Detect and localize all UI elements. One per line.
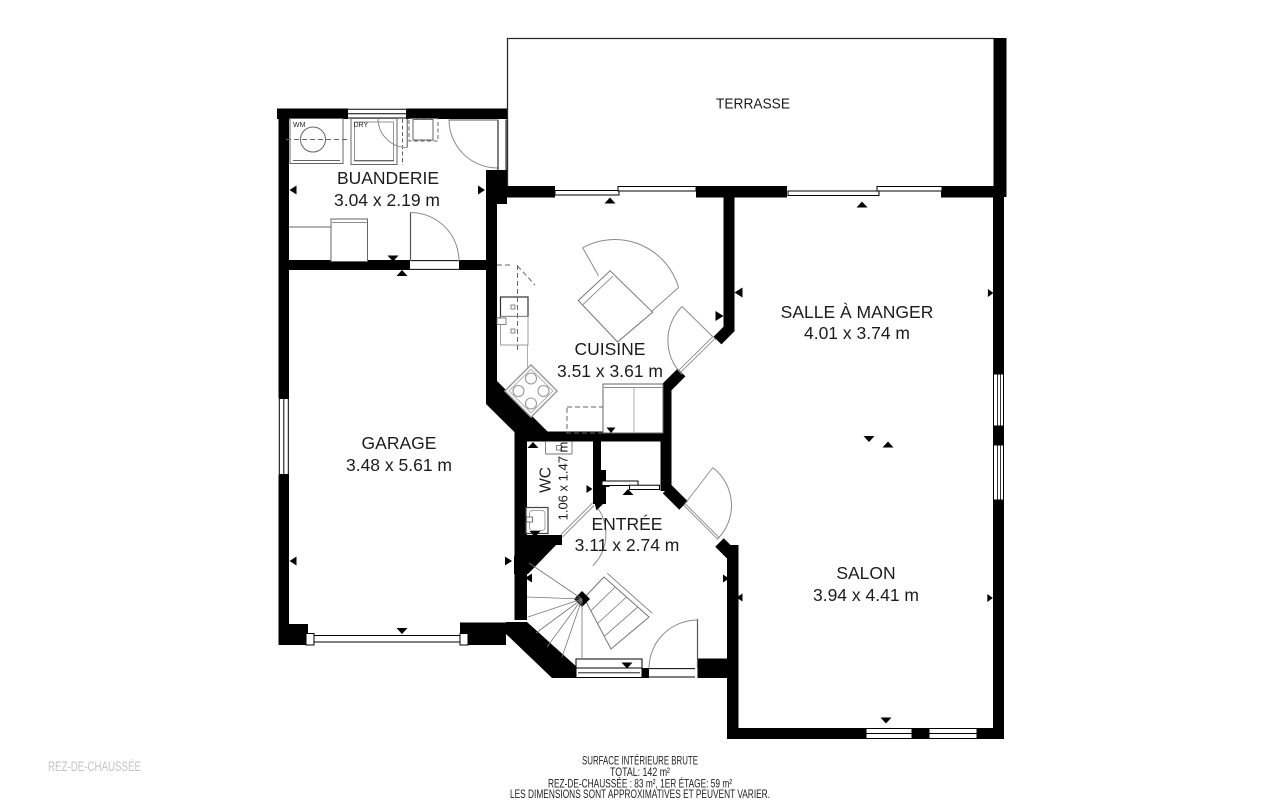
svg-text:ENTRÉE: ENTRÉE [592,514,663,534]
svg-text:TERRASSE: TERRASSE [716,95,790,112]
svg-text:3.11 x 2.74 m: 3.11 x 2.74 m [575,535,680,555]
svg-text:REZ-DE-CHAUSSÉE: REZ-DE-CHAUSSÉE [48,759,141,774]
svg-text:WC: WC [538,467,555,493]
svg-text:1.06 x 1.47 m: 1.06 x 1.47 m [556,442,571,521]
svg-text:SALON: SALON [836,563,895,583]
svg-text:WM: WM [293,122,306,129]
svg-text:SALLE À MANGER: SALLE À MANGER [781,302,934,322]
svg-text:3.04 x 2.19 m: 3.04 x 2.19 m [334,190,440,210]
svg-text:CUISINE: CUISINE [575,339,646,359]
svg-text:3.48 x 5.61 m: 3.48 x 5.61 m [346,455,452,475]
svg-text:3.51 x 3.61 m: 3.51 x 3.61 m [557,361,663,381]
svg-text:DRY: DRY [354,122,369,129]
svg-text:GARAGE: GARAGE [362,433,437,453]
svg-text:LES DIMENSIONS SONT APPROXIMAT: LES DIMENSIONS SONT APPROXIMATIVES ET PE… [510,787,770,800]
svg-text:BUANDERIE: BUANDERIE [337,168,439,188]
svg-text:3.94 x 4.41 m: 3.94 x 4.41 m [813,585,919,605]
svg-text:4.01 x 3.74 m: 4.01 x 3.74 m [804,323,910,343]
